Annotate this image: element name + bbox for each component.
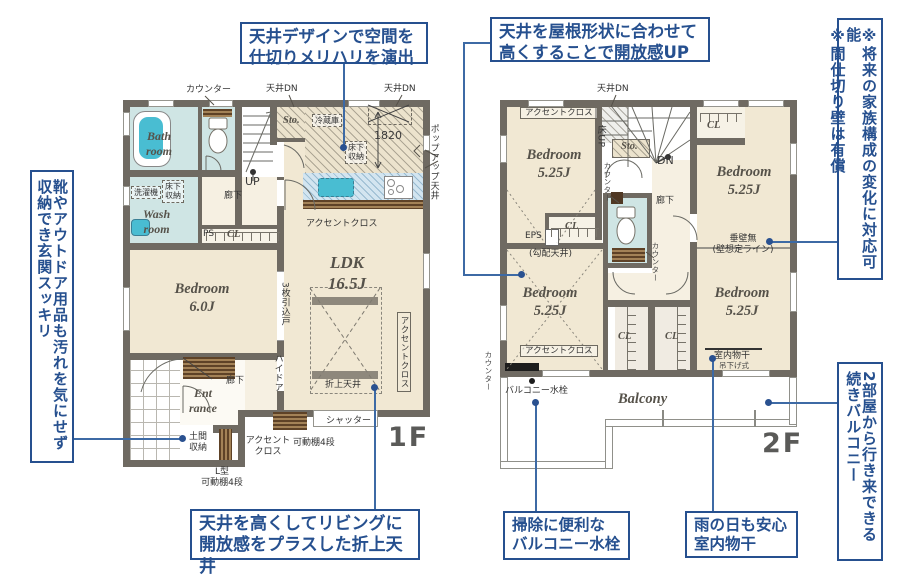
balcony-label: Balcony [618,390,667,408]
connector-dot [766,238,773,245]
dn-label: DN [657,155,674,168]
bath-room-label: Bath room [146,129,172,159]
entrance-label: Ent rance [189,386,217,416]
accent-cross-ldk-label: アクセントクロス [397,312,411,392]
storage-label-1f: Sto. [283,114,300,127]
connector-dot [709,355,716,362]
connector-line [535,405,537,512]
dim-1820-label: 1820 [374,130,402,143]
connector-line [772,241,837,243]
floor-up-label: 床UP [595,125,606,148]
connector-line [74,438,182,440]
counter-2f-stairs-label: カウンター [602,162,611,202]
hallway-2f-label: 廊下 [656,196,674,207]
up-label: UP [245,176,260,189]
bedroom-2f-tl-label: Bedroom 5.25J [516,146,592,182]
cl-2f-tr-label: CL [707,119,720,132]
connector-line [712,361,714,511]
connector-dot [340,144,347,151]
connector-dot [179,435,186,442]
connector-dot [532,399,539,406]
storage-2f-label: Sto. [621,140,638,153]
ldk-label: LDK 16.5J [318,252,376,295]
floorplan-flyer: カウンター天井DN天井DNSto.冷蔵庫1820ポップアップ天井床下 収納アクセ… [0,0,900,580]
connector-line [343,64,345,148]
hallway-1f-label: 廊下 [224,191,242,202]
bedroom-2f-tr-label: Bedroom 5.25J [706,163,782,199]
connector-line [771,402,837,404]
bedroom-1f-label: Bedroom 6.0J [164,280,240,316]
ceiling-dn-left-label: 天井DN [266,84,298,95]
lshape-shelf-label: L型 可動棚4段 [196,467,248,488]
connector-line [463,274,523,276]
bedroom-2f-bl-label: Bedroom 5.25J [512,284,588,320]
popup-ceiling-label: ポップアップ天井 [428,124,439,200]
callout-partition-note: ※将来の家族構成の変化に対応可能 ※間仕切り壁は有償 [837,18,883,280]
underfloor-storage-wash-label: 床下 収納 [162,180,184,203]
ps-label: PS [203,229,214,240]
connector-dot [765,399,772,406]
balcony-tap-label: バルコニー水栓 [505,386,568,397]
accent-cross-kitchen-label: アクセントクロス [306,219,378,230]
connector-line [463,42,465,276]
eps-label: EPS [525,231,542,242]
doma-storage-label: 土間 収納 [183,432,213,453]
floor-label-1f: 1F [388,422,429,454]
shutter-label: シャッター [326,416,371,427]
connector-line [374,390,376,510]
ceiling-dn-2f-label: 天井DN [597,84,629,95]
high-door-label: ハイドア [272,354,283,392]
sliding-door-label: 3枚引込戸 [279,282,290,326]
accent-cross-2f-bl-label: アクセントクロス [520,345,598,357]
callout-indoor-drying: 雨の日も安心 室内物干 [685,511,798,558]
plan-labels: カウンター天井DN天井DNSto.冷蔵庫1820ポップアップ天井床下 収納アクセ… [0,0,900,580]
callout-oriage-ceiling: 天井を高くしてリビングに 開放感をプラスした折上天井 [190,509,420,560]
ceiling-dn-right-label: 天井DN [384,84,416,95]
bedroom-2f-br-label: Bedroom 5.25J [704,284,780,320]
cl-1f-label: CL [227,228,240,241]
connector-dot [518,271,525,278]
counter-balcony-label: カウンター [483,351,492,391]
accent-cross-ent-label: アクセント クロス [245,436,291,457]
underfloor-storage-kitchen-label: 床下 収納 [345,141,367,164]
fridge-label: 冷蔵庫 [312,114,342,127]
floor-label-2f: 2F [762,428,803,460]
callout-continuous-balcony: 2部屋から行き来できる 続きバルコニー [837,362,883,561]
monohoshi-sub-label: 吊下げ式 [719,362,749,371]
wash-room-label: Wash room [143,207,170,237]
washer-label: 洗濯機 [131,186,161,199]
cl-2f-mb1-label: CL [618,330,631,343]
cl-2f-ml-label: CL [565,220,578,233]
connector-line [463,42,491,44]
oriage-ceiling-label: 折上天井 [325,380,361,391]
callout-roof-shape: 天井を屋根形状に合わせて 高くすることで開放感UP [490,17,710,62]
counter-2f-toilet-label: カウンター [650,242,659,282]
connector-dot [371,384,378,391]
shelf4-label: 可動棚4段 [293,438,335,449]
callout-balcony-tap: 掃除に便利な バルコニー水栓 [503,511,630,560]
counter-label-1f: カウンター [186,85,231,96]
cl-2f-mb2-label: CL [665,330,678,343]
slope-ceiling-label: (勾配天井) [529,249,572,260]
callout-ceiling-design: 天井デザインで空間を 仕切りメリハリを演出 [240,22,428,64]
tarekabe-label: 垂壁無 (壁想定ライン) [702,234,784,255]
callout-genkan-storage: 靴やアウトドア用品も汚れを気にせず 収納でき玄関スッキリ [30,170,74,463]
accent-cross-2f-tl-label: アクセントクロス [520,107,598,119]
hallway-ent-label: 廊下 [226,376,244,387]
